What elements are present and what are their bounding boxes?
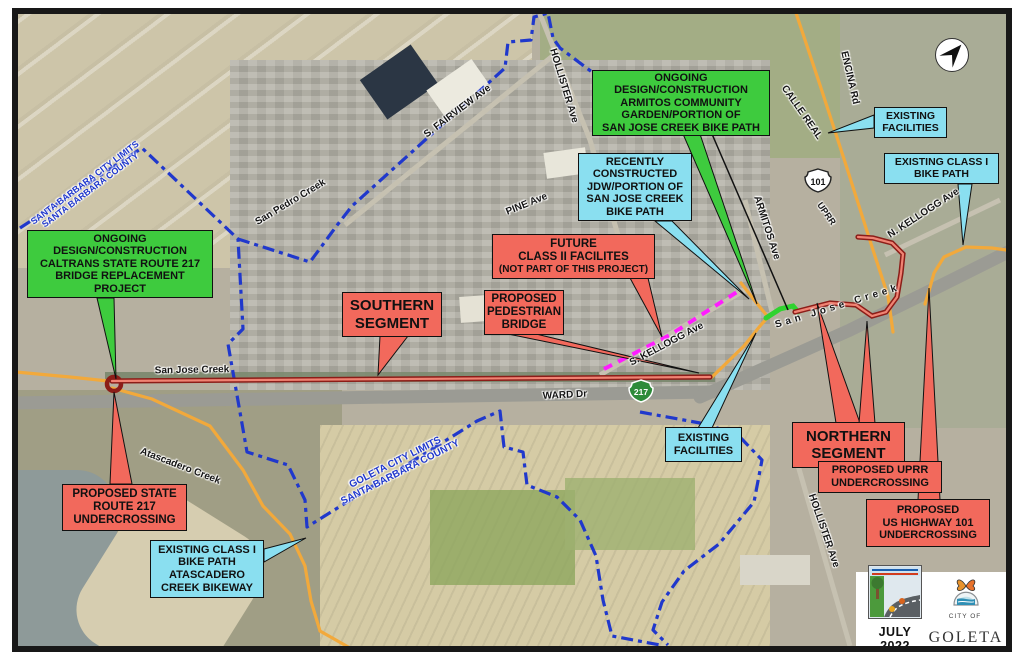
callout-existing-class1-atascadero: EXISTING CLASS IBIKE PATHATASCADEROCREEK… <box>150 540 264 598</box>
callout-recently-constructed: RECENTLYCONSTRUCTEDJDW/PORTION OFSAN JOS… <box>578 153 692 221</box>
leader-exfac-top <box>828 115 874 133</box>
callout-line: DESIGN/CONSTRUCTION <box>53 245 187 258</box>
callout-line: UNDERCROSSING <box>831 477 929 490</box>
callout-line: UNDERCROSSING <box>879 529 977 542</box>
sr217-shield: 217 <box>628 379 654 403</box>
callout-line: UNDERCROSSING <box>73 514 175 527</box>
callout-armitos-garden: ONGOINGDESIGN/CONSTRUCTIONARMITOS COMMUN… <box>592 70 770 136</box>
callout-line: BIKE PATH <box>606 206 664 219</box>
project-logo: JULY 2022 <box>864 565 926 653</box>
leader-recently <box>655 221 749 299</box>
callout-line: FUTURE <box>550 238 597 251</box>
sr217-shield-number: 217 <box>634 387 648 397</box>
callout-line: CALTRANS STATE ROUTE 217 <box>40 258 200 271</box>
us101-shield-number: 101 <box>810 177 825 187</box>
callout-line: ARMITOS COMMUNITY <box>620 97 741 110</box>
callout-line: SEGMENT <box>811 445 885 462</box>
callout-line: PROPOSED <box>491 293 556 306</box>
callout-line: GARDEN/PORTION OF <box>621 109 740 122</box>
callout-line: SAN JOSE CREEK BIKE PATH <box>602 122 760 135</box>
footer-logo-box: JULY 2022 CITY OFGOLETA <box>856 572 1006 646</box>
callout-line: EXISTING CLASS I <box>895 157 988 169</box>
callout-proposed-uprr-undercrossing: PROPOSED UPRRUNDERCROSSING <box>818 461 942 493</box>
existing-path-west <box>16 372 108 381</box>
callout-existing-facilities-bottom: EXISTINGFACILITIES <box>665 427 742 462</box>
callout-line: BRIDGE REPLACEMENT <box>55 270 185 283</box>
city-of-label: CITY OF <box>949 613 982 620</box>
us101-freeway-west <box>12 392 712 403</box>
callout-southern-segment: SOUTHERNSEGMENT <box>342 292 442 337</box>
us101-shield: 101 <box>804 168 832 193</box>
callout-line: EXISTING <box>678 432 729 445</box>
callout-line: EXISTING <box>886 111 935 123</box>
goleta-logo-icon <box>946 572 986 606</box>
callout-caltrans-217-bridge: ONGOINGDESIGN/CONSTRUCTIONCALTRANS STATE… <box>27 230 213 298</box>
leader-future <box>630 278 662 337</box>
callout-existing-class1-bike-path: EXISTING CLASS IBIKE PATH <box>884 153 999 184</box>
callout-line: BIKE PATH <box>914 169 969 181</box>
page-margin-bottom <box>0 652 1024 663</box>
callout-line: SAN JOSE CREEK <box>586 193 683 206</box>
callout-line: ONGOING <box>654 72 707 85</box>
footer-date: JULY 2022 <box>864 625 926 653</box>
callout-proposed-sr217-undercrossing: PROPOSED STATEROUTE 217UNDERCROSSING <box>62 484 187 531</box>
leader-caltrans <box>97 298 116 379</box>
callout-line: BIKE PATH <box>178 556 236 569</box>
project-map-page: 217 101 JULY 2022 <box>0 0 1024 663</box>
callout-line: FACILITIES <box>882 123 939 135</box>
callout-proposed-pedestrian-bridge: PROPOSEDPEDESTRIANBRIDGE <box>484 290 564 335</box>
callout-proposed-us101-undercrossing: PROPOSEDUS HIGHWAY 101UNDERCROSSING <box>866 499 990 547</box>
north-arrow-icon <box>933 36 971 74</box>
page-margin-top <box>0 0 1024 8</box>
callout-line: FACILITIES <box>674 445 733 458</box>
map-label-san-jose-creek-west: San Jose Creek <box>155 365 230 377</box>
callout-line: JDW/PORTION OF <box>587 181 683 194</box>
sr217-loop <box>107 377 121 391</box>
callout-line: BRIDGE <box>502 319 547 332</box>
callout-existing-facilities-top: EXISTINGFACILITIES <box>874 107 947 138</box>
callout-line: SOUTHERN <box>350 297 434 314</box>
callout-line: RECENTLY <box>606 156 664 169</box>
callout-line: PROJECT <box>94 283 146 296</box>
leader-southern <box>378 336 408 375</box>
city-of-goleta-logo: CITY OFGOLETA <box>926 572 1006 647</box>
page-margin-left <box>0 0 12 663</box>
callout-line: ROUTE 217 <box>93 501 156 514</box>
callout-line: ATASCADERO <box>169 569 245 582</box>
callout-line: CREEK BIKEWAY <box>161 582 253 595</box>
callout-line: PEDESTRIAN <box>487 306 561 319</box>
callout-line: NORTHERN <box>806 428 891 445</box>
callout-line: PROPOSED STATE <box>72 488 176 501</box>
callout-line: ONGOING <box>93 233 146 246</box>
goleta-label: GOLETA <box>929 629 1004 646</box>
callout-line: DESIGN/CONSTRUCTION <box>614 84 748 97</box>
callout-future-class2: FUTURECLASS II FACILITES(NOT PART OF THI… <box>492 234 655 279</box>
leader-armitos <box>683 134 757 304</box>
leader-northern <box>817 303 860 423</box>
callout-line: CONSTRUCTED <box>593 168 677 181</box>
trail-project-logo-icon <box>868 565 922 619</box>
callout-line: US HIGHWAY 101 <box>882 517 973 530</box>
callout-line: PROPOSED <box>897 504 959 517</box>
callout-line: SEGMENT <box>355 315 429 332</box>
callout-line: (NOT PART OF THIS PROJECT) <box>499 264 648 275</box>
callout-line: PROPOSED UPRR <box>832 464 929 477</box>
callout-line: EXISTING CLASS I <box>158 544 256 557</box>
page-margin-right <box>1012 0 1024 663</box>
callout-line: CLASS II FACILITES <box>518 251 629 264</box>
